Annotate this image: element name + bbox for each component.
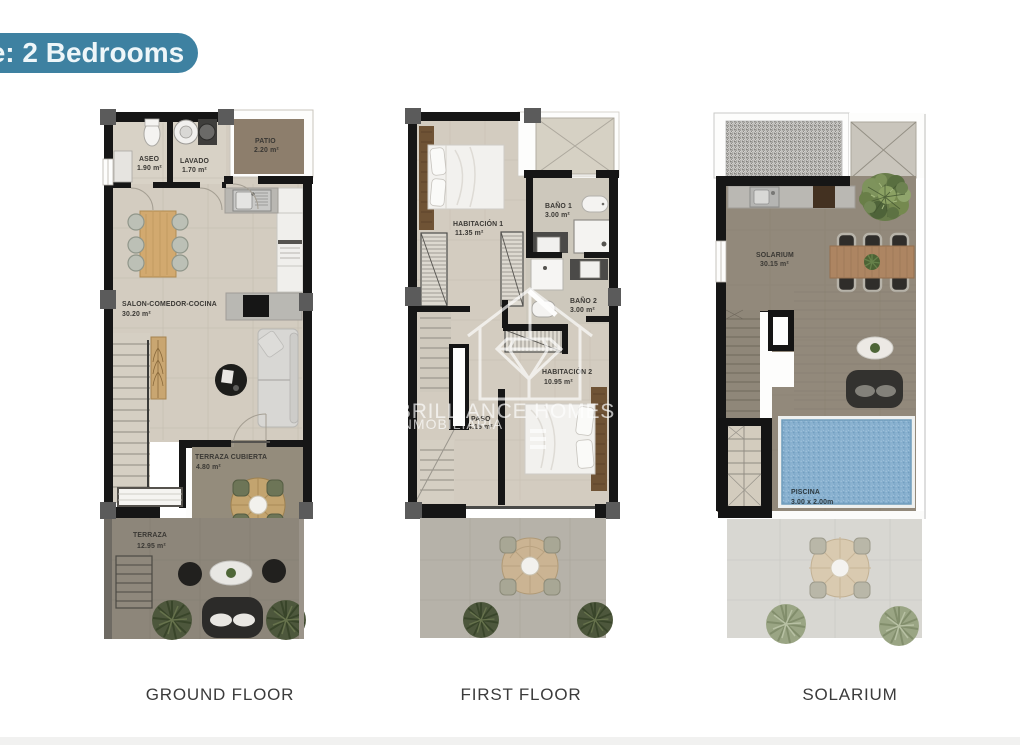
svg-text:10.95 m²: 10.95 m² xyxy=(544,379,573,386)
svg-text:PATIO: PATIO xyxy=(255,138,276,145)
svg-text:3.00 x 2.00m: 3.00 x 2.00m xyxy=(791,499,833,506)
svg-text:3.00 m²: 3.00 m² xyxy=(545,212,570,219)
svg-text:12.95 m²: 12.95 m² xyxy=(137,543,166,550)
svg-text:3.00 m²: 3.00 m² xyxy=(570,307,595,314)
svg-text:HABITACIÓN 1: HABITACIÓN 1 xyxy=(453,219,503,228)
svg-text:TERRAZA: TERRAZA xyxy=(133,532,167,539)
svg-text:4.80 m²: 4.80 m² xyxy=(196,464,221,471)
svg-text:ASEO: ASEO xyxy=(139,156,160,163)
svg-text:INMOBILIARIA: INMOBILIARIA xyxy=(397,416,503,432)
svg-text:LAVADO: LAVADO xyxy=(180,158,209,165)
svg-text:TERRAZA CUBIERTA: TERRAZA CUBIERTA xyxy=(195,454,267,461)
svg-text:SALON-COMEDOR-COCINA: SALON-COMEDOR-COCINA xyxy=(122,301,217,308)
svg-text:SOLARIUM: SOLARIUM xyxy=(756,252,794,259)
svg-text:FIRST FLOOR: FIRST FLOOR xyxy=(461,685,582,704)
svg-text:30.20 m²: 30.20 m² xyxy=(122,311,151,318)
svg-text:2.20 m²: 2.20 m² xyxy=(254,147,279,154)
svg-text:1.70 m²: 1.70 m² xyxy=(182,167,207,174)
svg-text:30.15 m²: 30.15 m² xyxy=(760,261,789,268)
svg-text:1.90 m²: 1.90 m² xyxy=(137,165,162,172)
svg-text:BAÑO 2: BAÑO 2 xyxy=(570,296,597,305)
svg-text:GROUND FLOOR: GROUND FLOOR xyxy=(146,685,294,704)
svg-text:Type: 2 Bedrooms: Type: 2 Bedrooms xyxy=(0,37,184,68)
svg-text:BAÑO 1: BAÑO 1 xyxy=(545,201,572,210)
svg-text:SOLARIUM: SOLARIUM xyxy=(802,685,897,704)
svg-text:HABITACIÓN 2: HABITACIÓN 2 xyxy=(542,367,592,376)
svg-text:PISCINA: PISCINA xyxy=(791,489,820,496)
svg-text:11.35 m²: 11.35 m² xyxy=(455,230,484,237)
